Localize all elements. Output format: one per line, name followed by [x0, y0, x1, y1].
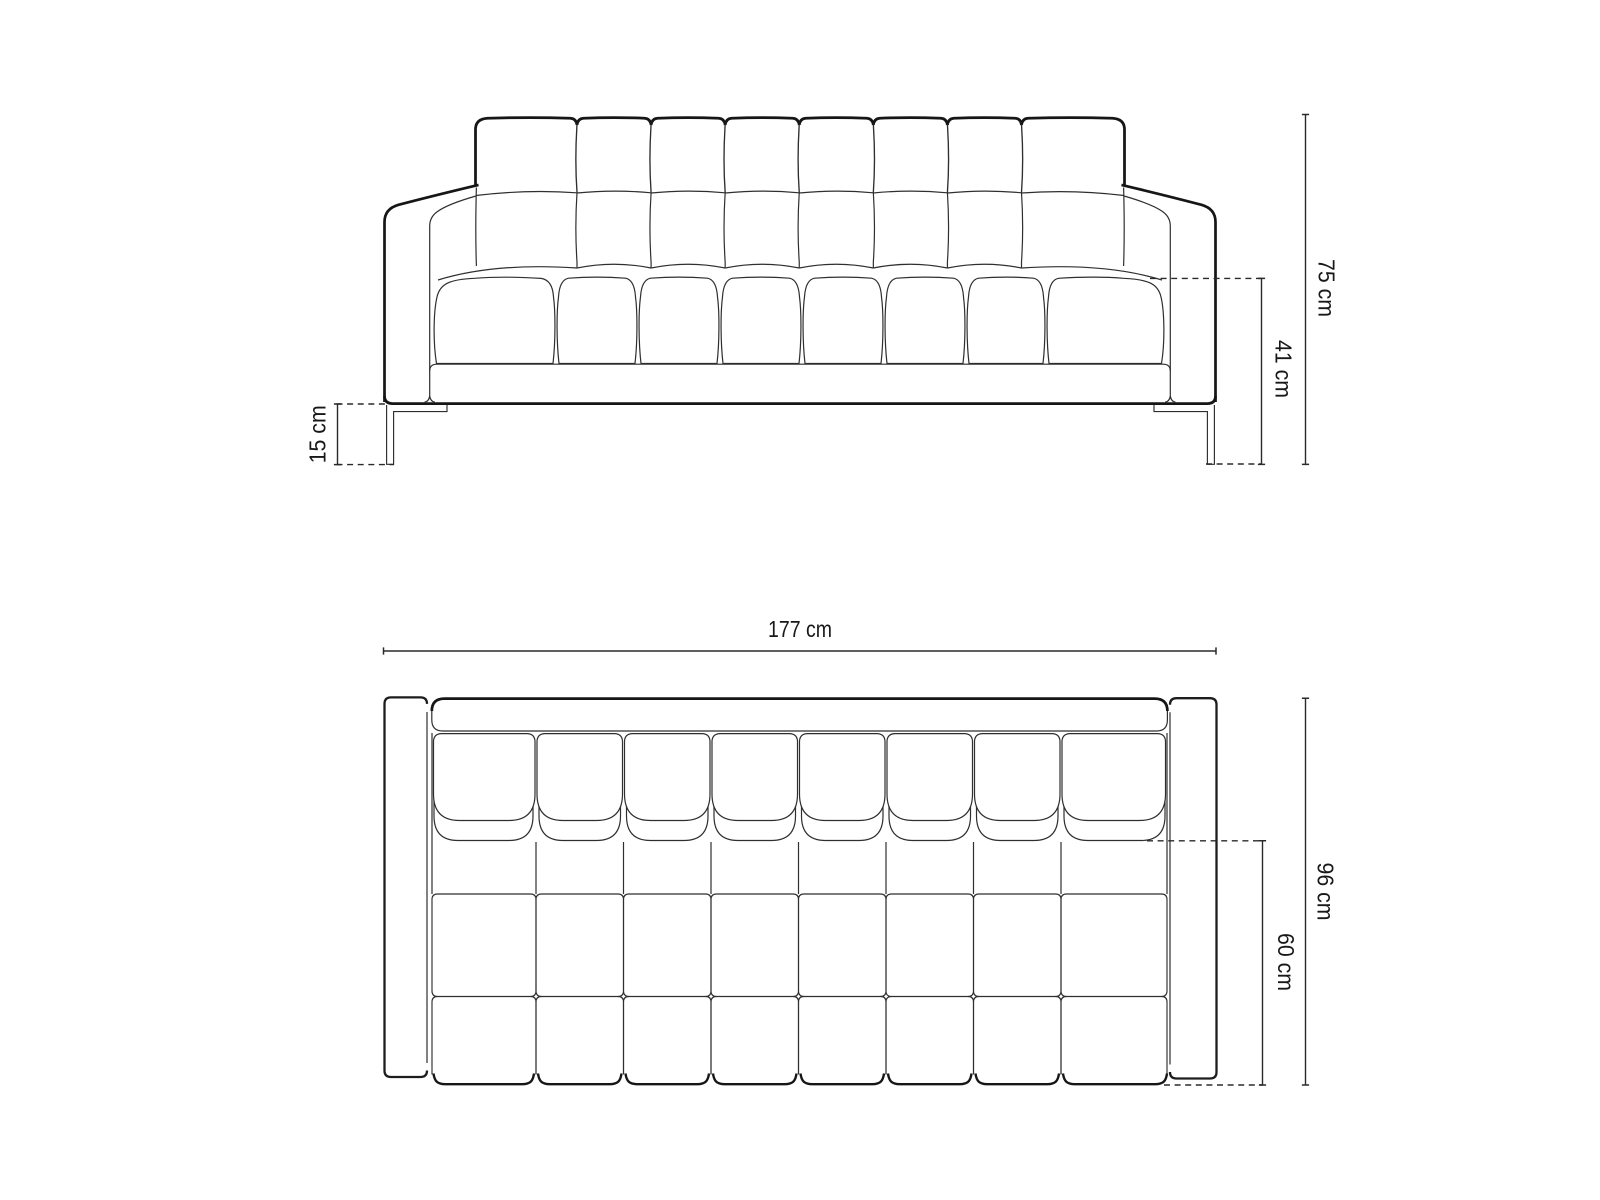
svg-text:75 cm: 75 cm [1313, 259, 1339, 317]
svg-text:41 cm: 41 cm [1270, 340, 1296, 398]
svg-text:15 cm: 15 cm [304, 405, 330, 463]
svg-text:177 cm: 177 cm [768, 616, 832, 642]
svg-text:96 cm: 96 cm [1312, 863, 1338, 921]
svg-text:60 cm: 60 cm [1273, 933, 1299, 991]
